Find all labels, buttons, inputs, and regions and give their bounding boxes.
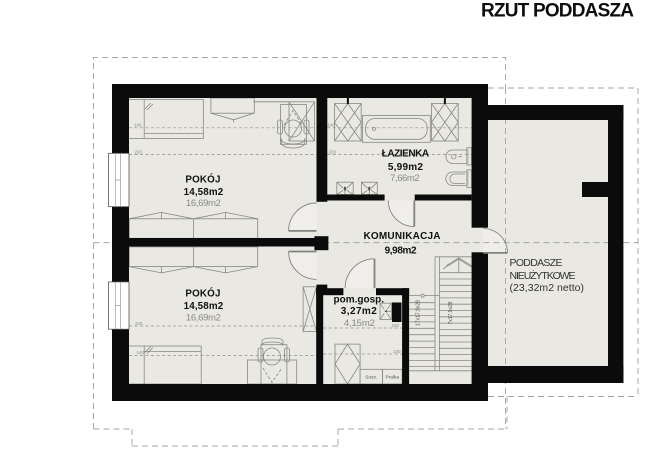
svg-text:7x17,9x28: 7x17,9x28 [448, 301, 454, 324]
svg-text:ŁAZIENKA: ŁAZIENKA [382, 148, 430, 159]
svg-text:(23,32m2 netto): (23,32m2 netto) [510, 282, 585, 294]
svg-text:220: 220 [135, 149, 143, 154]
svg-text:16,69m2: 16,69m2 [186, 313, 221, 324]
svg-text:NIEUŻYTKOWE: NIEUŻYTKOWE [510, 269, 576, 282]
svg-text:220: 220 [135, 321, 143, 326]
svg-text:Susz.: Susz. [365, 375, 377, 381]
svg-text:140: 140 [328, 123, 336, 128]
svg-text:KOMUNIKACJA: KOMUNIKACJA [364, 231, 441, 242]
svg-text:14,58m2: 14,58m2 [184, 187, 224, 198]
svg-text:9,98m2: 9,98m2 [385, 246, 417, 257]
svg-text:Pralka: Pralka [385, 375, 399, 381]
svg-text:PODDASZE: PODDASZE [510, 257, 563, 269]
svg-text:7,66m2: 7,66m2 [390, 173, 420, 184]
svg-text:4,15m2: 4,15m2 [344, 318, 375, 329]
svg-text:220: 220 [392, 323, 400, 328]
svg-text:140: 140 [134, 123, 142, 128]
svg-text:pom.gosp.: pom.gosp. [334, 295, 385, 306]
svg-text:16,69m2: 16,69m2 [186, 198, 221, 209]
svg-text:140: 140 [393, 349, 401, 354]
svg-text:220: 220 [329, 149, 337, 154]
svg-text:5,99m2: 5,99m2 [388, 162, 423, 173]
svg-text:14,58m2: 14,58m2 [184, 301, 224, 312]
svg-text:140: 140 [137, 350, 145, 355]
svg-text:RZUT PODDASZA: RZUT PODDASZA [481, 1, 634, 22]
svg-text:17x17,9x28: 17x17,9x28 [416, 300, 422, 326]
svg-text:POKÓJ: POKÓJ [185, 174, 220, 186]
svg-text:3,27m2: 3,27m2 [341, 306, 377, 317]
svg-text:POKÓJ: POKÓJ [185, 288, 220, 300]
